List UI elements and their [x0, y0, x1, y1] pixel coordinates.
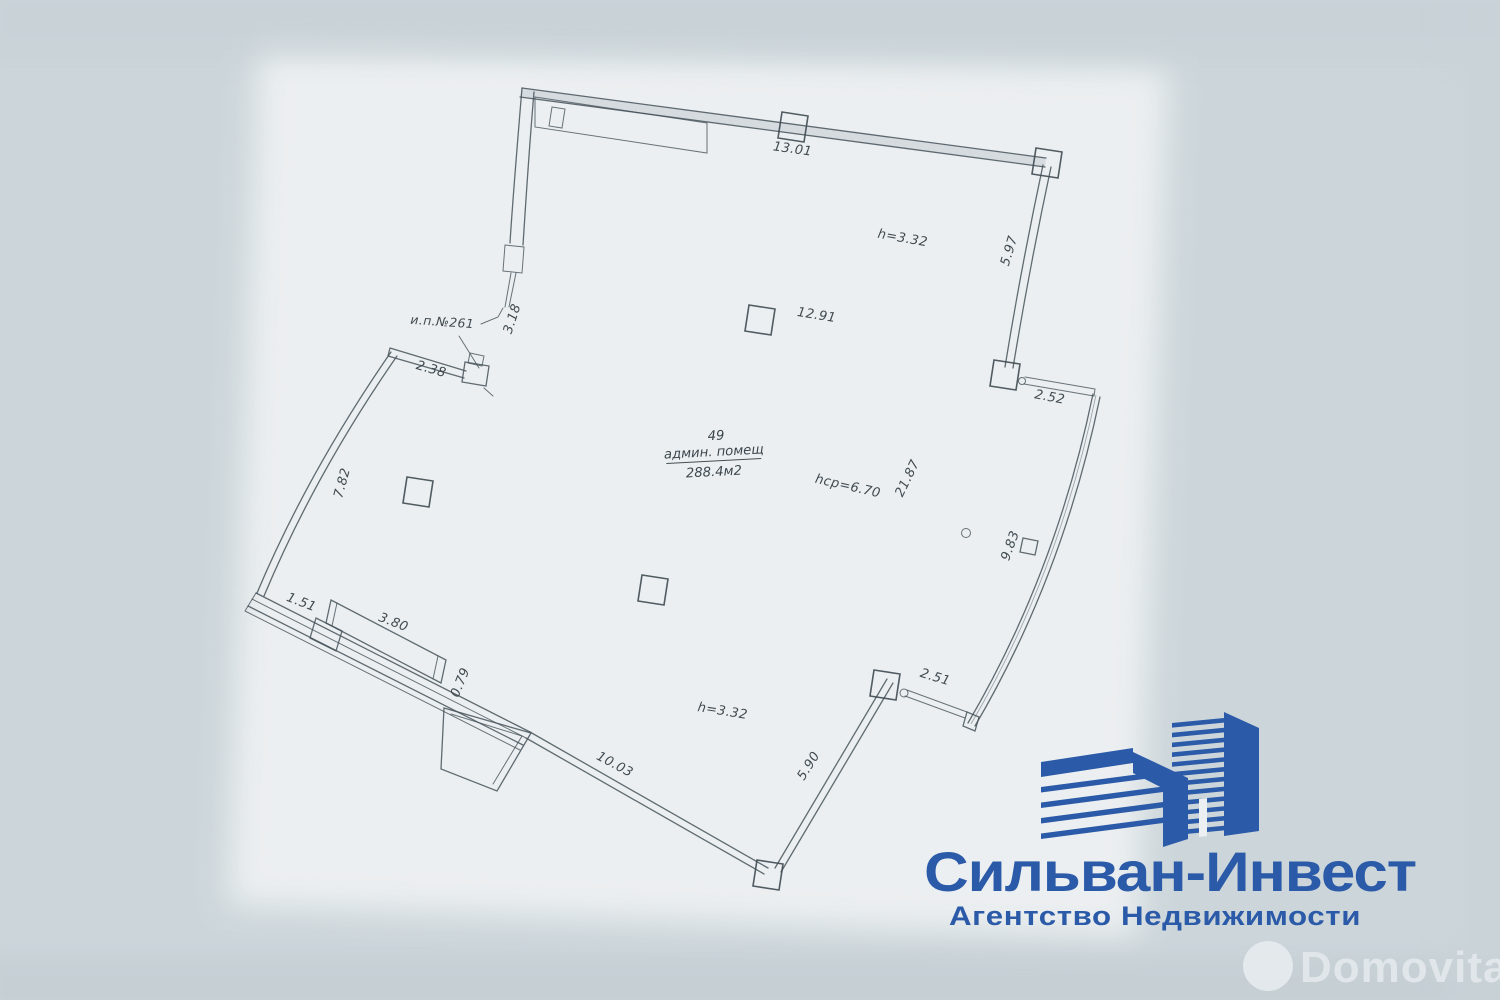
watermark-text: Domovita: [1300, 943, 1500, 992]
tower-side-face: [1224, 712, 1259, 836]
room-area: 288.4м2: [686, 464, 743, 482]
floor-plan-photo: 13.01 h=3.32 5.97 12.91 и.п.№261 3.18 2.…: [0, 0, 1500, 1000]
logo-subtitle: Агентство Недвижимости: [949, 901, 1361, 931]
building-bar: [1163, 779, 1188, 847]
tower-gap: [1199, 798, 1207, 837]
logo-title: Сильван-Инвест: [924, 840, 1416, 903]
domovita-watermark: Domovita: [1243, 941, 1500, 992]
photo-shadow-top: [0, 0, 1500, 60]
paper-sheet: [228, 45, 1168, 938]
watermark-circle-icon: [1243, 941, 1293, 991]
room-number: 49: [707, 428, 725, 444]
photo-shadow-right: [1445, 0, 1500, 1000]
